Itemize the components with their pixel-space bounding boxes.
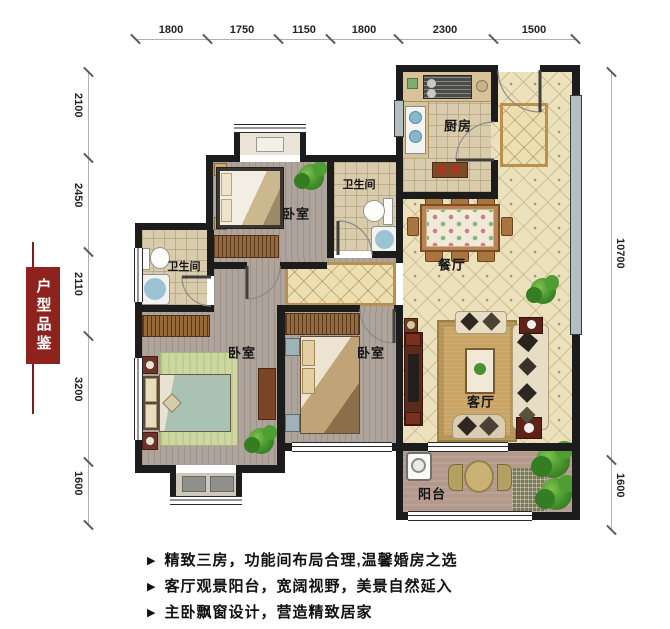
label-bath-left: 卫生间 [168, 258, 201, 274]
balcony-chair [448, 464, 463, 491]
window-living-balcony [428, 442, 508, 452]
bullet-icon: ▶ [147, 551, 155, 571]
dining-chair [407, 217, 419, 236]
side-table-plate [524, 423, 534, 433]
island-dish [452, 166, 460, 174]
sink-basin [409, 130, 422, 143]
toilet [142, 248, 150, 270]
stove-burner [427, 89, 436, 98]
kitchen-shelf [407, 78, 418, 89]
dim-top-6: 1500 [512, 24, 556, 36]
nightstand [285, 338, 300, 356]
banner-title: 户型品鉴 [26, 267, 60, 364]
wall [396, 65, 498, 72]
bullet-icon: ▶ [147, 577, 155, 597]
label-living: 客厅 [467, 392, 495, 411]
plant-balcony [540, 478, 572, 510]
wall [394, 305, 403, 312]
window-bedroom-mid [292, 442, 392, 452]
window-bath-left [134, 248, 143, 302]
plant-master [248, 428, 274, 454]
wall [206, 155, 213, 230]
dim-left-3: 2110 [72, 272, 84, 316]
island-dish [438, 166, 446, 174]
dim-left-4: 3200 [72, 377, 84, 421]
bay-window-top [234, 124, 306, 133]
nightstand-lamp [146, 437, 154, 445]
washer-drum [411, 458, 426, 473]
toilet-bowl [363, 200, 385, 222]
nightstand [285, 414, 300, 432]
label-balcony: 阳台 [418, 484, 446, 503]
bay-seat [256, 137, 284, 152]
label-bedroom-top: 卧室 [282, 204, 310, 223]
kitchen-bowl [476, 80, 488, 92]
bay-cushion [210, 476, 234, 492]
sink-basin [409, 111, 422, 124]
bed-pillow [221, 199, 232, 222]
bullet-icon: ▶ [147, 603, 155, 623]
dim-right-2: 1600 [614, 473, 626, 517]
wall [372, 251, 403, 258]
wall [396, 443, 403, 520]
wall [213, 262, 247, 269]
bay-cushion [182, 476, 206, 492]
clock-face [407, 321, 415, 329]
wall [327, 162, 334, 258]
speaker [405, 412, 421, 425]
wardrobe-bedroom-top [213, 235, 279, 258]
label-bedroom-master: 卧室 [228, 343, 256, 362]
dim-line-top [135, 39, 575, 40]
wall [277, 305, 285, 473]
plant-dining [530, 278, 556, 304]
wall [396, 307, 403, 443]
coffee-table-plant [474, 363, 486, 375]
dining-tablecloth [426, 209, 494, 247]
wall [491, 65, 498, 122]
bed-pillow [145, 378, 157, 402]
side-table-plate [527, 320, 536, 329]
bathtub-water [375, 230, 394, 249]
window-balcony [408, 511, 532, 521]
balcony-table [464, 460, 494, 493]
label-bedroom-mid: 卧室 [357, 343, 385, 362]
speaker [405, 333, 421, 346]
label-kitchen: 厨房 [444, 116, 472, 135]
bay-window-master [170, 496, 242, 505]
dim-top-3: 1150 [282, 24, 326, 36]
plant-bedroom-top [298, 164, 324, 190]
tv [408, 354, 419, 402]
dim-left-1: 2100 [72, 93, 84, 137]
bed-pillow [221, 173, 232, 196]
feature-text: 主卧飘窗设计，营造精致居家 [164, 603, 372, 623]
dim-top-2: 1750 [220, 24, 264, 36]
wall [396, 65, 403, 263]
dim-left-2: 2450 [72, 183, 84, 227]
floorplan-page: { "banner": { "text": "户型品鉴" }, "dims": … [0, 0, 670, 609]
label-bath-top: 卫生间 [343, 176, 376, 192]
dim-top-4: 1800 [342, 24, 386, 36]
feature-item: ▶ 客厅观景阳台，宽阔视野，美景自然延入 [147, 577, 458, 597]
wall [135, 223, 213, 230]
dim-line-left [88, 72, 89, 525]
entry-mat [500, 103, 548, 167]
feature-item: ▶ 精致三房，功能间布局合理,温馨婚房之选 [147, 551, 458, 571]
wall [207, 306, 214, 312]
dining-chair [501, 217, 513, 236]
feature-item: ▶ 主卧飘窗设计，营造精致居家 [147, 603, 458, 623]
wall [396, 192, 498, 199]
feature-list: ▶ 精致三房，功能间布局合理,温馨婚房之选 ▶ 客厅观景阳台，宽阔视野，美景自然… [147, 551, 458, 629]
window-master [134, 358, 143, 440]
wall [277, 305, 360, 312]
bed-pillow [145, 404, 157, 428]
bed-pillow [302, 368, 315, 394]
dim-right-1: 10700 [614, 238, 626, 294]
dim-top-1: 1800 [149, 24, 193, 36]
wall [300, 155, 403, 162]
dim-top-5: 2300 [423, 24, 467, 36]
nightstand-lamp [146, 361, 154, 369]
dim-left-5: 1600 [72, 471, 84, 515]
wall [207, 230, 214, 276]
wall [280, 262, 327, 269]
stove-burner [427, 79, 436, 88]
feature-text: 客厅观景阳台，宽阔视野，美景自然延入 [164, 577, 452, 597]
wardrobe-master [142, 315, 210, 337]
wall [135, 465, 176, 473]
bed-pillow [302, 340, 315, 366]
balcony-chair [497, 464, 512, 491]
wall [135, 305, 214, 312]
feature-text: 精致三房，功能间布局合理,温馨婚房之选 [164, 551, 457, 571]
master-desk [258, 368, 276, 420]
window-kitchen [394, 100, 404, 137]
window-right [570, 95, 582, 335]
bathtub-water [144, 278, 166, 300]
label-dining: 餐厅 [438, 255, 466, 274]
wardrobe-bedroom-mid [285, 313, 360, 335]
wall [508, 443, 572, 451]
wall [403, 443, 428, 451]
